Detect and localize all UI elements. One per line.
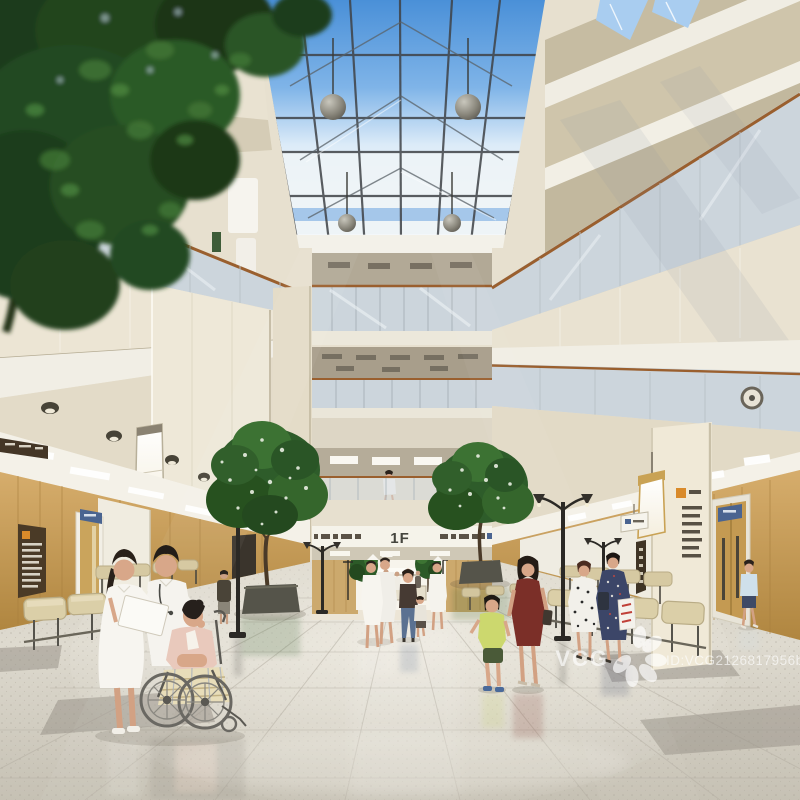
atrium-render: 1F xyxy=(0,0,800,800)
floor-level-text: 1F xyxy=(390,530,410,547)
sandal xyxy=(112,728,125,734)
left-directory-board xyxy=(18,524,46,598)
watermark-brand-text: VCG xyxy=(555,646,609,671)
right-dark-plaque xyxy=(636,540,646,594)
pendant-lamp-ball xyxy=(338,214,356,232)
scene-canvas: 1F xyxy=(0,0,800,800)
watermark-id-text: ID:VCG2126817956b xyxy=(666,653,800,668)
handbag xyxy=(542,610,553,626)
floor-sign-beam: 1F xyxy=(296,526,504,560)
pendant-lamp-ball xyxy=(320,94,346,120)
pendant-lamp-ball xyxy=(443,214,461,232)
small-green-sign xyxy=(212,232,221,252)
door-handle xyxy=(722,538,725,600)
pendant-lamp-ball xyxy=(455,94,481,120)
sandal xyxy=(127,726,140,732)
door-handle xyxy=(736,536,739,598)
railing-drape xyxy=(228,178,258,233)
tree-planter xyxy=(459,560,503,584)
